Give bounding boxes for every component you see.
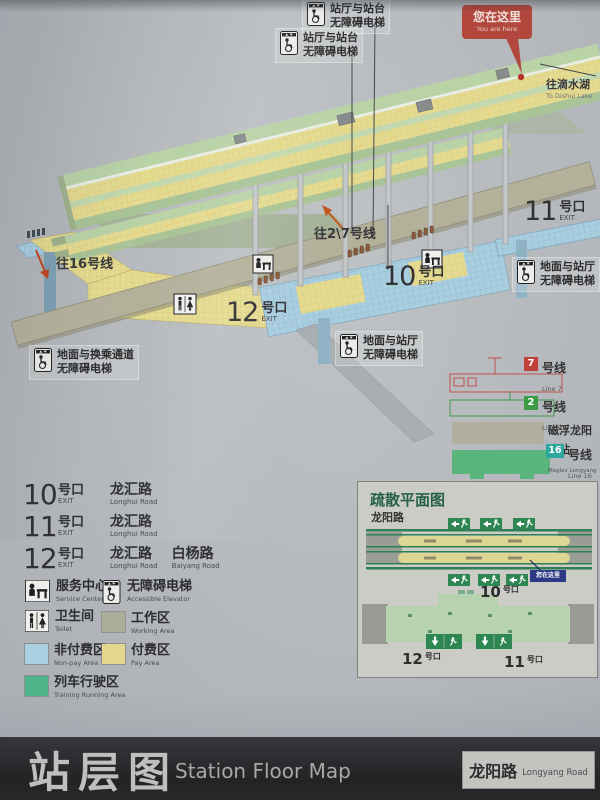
exit-number: 10 bbox=[383, 263, 415, 290]
station-floor-map-photo: 站厅与站台 无障碍电梯 站厅与站台 无障碍电梯 您在这里 You are her… bbox=[0, 0, 600, 800]
accessible-elevator-icon bbox=[102, 580, 121, 604]
road-cn: 白杨路 bbox=[172, 547, 220, 562]
line-7-sub: Line 7 bbox=[542, 385, 562, 393]
line-16-sub: Line 16 bbox=[568, 472, 592, 480]
road-cn: 龙汇路 bbox=[110, 515, 158, 530]
elevator-icon bbox=[340, 334, 358, 358]
to-dishui-cn: 往滴水湖 bbox=[546, 76, 598, 92]
legend-cn: 非付费区 bbox=[54, 644, 106, 659]
legend-accessible-elevator: 无障碍电梯 Accessible Elevator bbox=[102, 580, 192, 604]
evac-exit-suffix: 号口 bbox=[527, 656, 543, 664]
map-exit-12: 12 号口 EXIT bbox=[226, 299, 287, 326]
lift-label-line2: 无障碍电梯 bbox=[303, 45, 358, 59]
callout-lift-transfer-left: 地面与换乘通道 无障碍电梯 bbox=[30, 346, 138, 379]
exit-sub: EXIT bbox=[559, 214, 585, 222]
toilet-icon bbox=[25, 610, 49, 632]
station-name-cn: 龙阳路 bbox=[469, 758, 517, 782]
callout-lift-hall-platform-b: 站厅与站台 无障碍电梯 bbox=[276, 29, 362, 62]
legend-cn: 工作区 bbox=[131, 612, 175, 627]
elevator-icon bbox=[34, 348, 52, 372]
train-running-area-swatch bbox=[25, 676, 48, 696]
legend-en: Training Running Area bbox=[54, 691, 125, 699]
line-7-label: 号线 bbox=[542, 361, 566, 375]
evac-exit-11: 11 号口 bbox=[504, 655, 543, 670]
legend-en: Service Center bbox=[56, 595, 108, 603]
exit-sub: EXIT bbox=[261, 315, 287, 323]
evac-you-are-here-badge: 您在这里 bbox=[530, 570, 566, 582]
lift-label-line2: 无障碍电梯 bbox=[540, 274, 595, 288]
road-en: Longhui Road bbox=[110, 562, 158, 570]
exit-number: 11 bbox=[524, 198, 556, 225]
page-title-en: Station Floor Map bbox=[175, 759, 351, 783]
exit-suffix: 号口 bbox=[261, 302, 287, 315]
elevator-icon bbox=[307, 2, 325, 26]
legend-toilet: 卫生间 Toilet bbox=[25, 610, 94, 633]
line-2-label: 号线 bbox=[542, 400, 566, 414]
legend-cn: 列车行驶区 bbox=[54, 676, 125, 691]
road-en: Baiyang Road bbox=[172, 562, 220, 570]
evac-exit-number: 12 bbox=[402, 652, 423, 667]
legend-en: Accessible Elevator bbox=[127, 595, 192, 603]
non-pay-area-swatch bbox=[25, 644, 48, 664]
you-are-here-balloon: 您在这里 You are here bbox=[462, 5, 532, 39]
exit-suffix: 号口 bbox=[58, 548, 84, 561]
station-name-badge: 龙阳路 Longyang Road bbox=[463, 752, 594, 788]
exit-suffix: 号口 bbox=[58, 484, 84, 497]
line-16-row: 16 号线 Line 16 bbox=[546, 444, 592, 482]
callout-to-line-16: 往16号线 bbox=[56, 253, 113, 272]
evac-exit-suffix: 号口 bbox=[503, 586, 519, 594]
evac-exit-number: 11 bbox=[504, 655, 525, 670]
legend-cn: 付费区 bbox=[131, 644, 170, 659]
evac-exit-suffix: 号口 bbox=[425, 653, 441, 661]
legend-train-running-area: 列车行驶区 Training Running Area bbox=[25, 676, 125, 699]
exit-sub: EXIT bbox=[58, 529, 84, 537]
road-en: Longhui Road bbox=[110, 530, 158, 538]
lift-label-line1: 站厅与站台 bbox=[303, 31, 358, 45]
lift-label-line1: 地面与站厅 bbox=[363, 334, 418, 348]
pay-area-swatch bbox=[102, 644, 125, 664]
service-center-icon bbox=[253, 255, 273, 273]
legend-en: Non-pay Area bbox=[54, 659, 106, 667]
lift-label-line1: 地面与站厅 bbox=[540, 260, 595, 274]
legend-non-pay-area: 非付费区 Non-pay Area bbox=[25, 644, 106, 667]
exit-road-row-11: 11 号口 EXIT 龙汇路 Longhui Road bbox=[23, 513, 158, 541]
road-cn: 龙汇路 bbox=[110, 547, 158, 562]
legend-en: Working Area bbox=[131, 627, 175, 635]
station-name-en: Longyang Road bbox=[522, 768, 588, 778]
exit-road-row-12: 12 号口 EXIT 龙汇路 Longhui Road 白杨路 Baiyang … bbox=[23, 545, 220, 573]
service-center-icon bbox=[25, 580, 50, 602]
exit-suffix: 号口 bbox=[418, 266, 444, 279]
legend-en: Pay Area bbox=[131, 659, 170, 667]
legend-cn: 卫生间 bbox=[55, 610, 94, 625]
you-are-here-en: You are here bbox=[462, 25, 532, 33]
exit-number: 12 bbox=[23, 545, 58, 573]
exit-sub: EXIT bbox=[58, 561, 84, 569]
lift-label-line1: 站厅与站台 bbox=[330, 2, 385, 16]
callout-lift-ground-hall-center: 地面与站厅 无障碍电梯 bbox=[336, 332, 422, 365]
line-16-badge: 16 bbox=[546, 444, 564, 458]
exit-suffix: 号口 bbox=[58, 516, 84, 529]
legend-service-center: 服务中心 Service Center bbox=[25, 580, 108, 603]
callout-to-dishui-lake: 往滴水湖 To Dishui Lake bbox=[546, 76, 598, 100]
working-area-swatch bbox=[102, 612, 125, 632]
map-exit-11: 11 号口 EXIT bbox=[524, 198, 585, 225]
map-exit-10: 10 号口 EXIT bbox=[383, 263, 444, 290]
legend-cn: 无障碍电梯 bbox=[127, 580, 192, 595]
lift-label-line2: 无障碍电梯 bbox=[363, 348, 418, 362]
to-dishui-en: To Dishui Lake bbox=[546, 92, 598, 100]
evac-exit-number: 10 bbox=[480, 585, 501, 600]
elevator-icon bbox=[517, 260, 535, 284]
you-are-here-cn: 您在这里 bbox=[462, 5, 532, 25]
line-2-badge: 2 bbox=[524, 396, 538, 410]
toilet-icon bbox=[174, 294, 196, 314]
exit-number: 12 bbox=[226, 299, 258, 326]
page-title-cn: 站层图 bbox=[28, 739, 178, 800]
callout-lift-hall-platform-a: 站厅与站台 无障碍电梯 bbox=[303, 0, 389, 33]
exit-sub: EXIT bbox=[418, 279, 444, 287]
line-16-label: 号线 bbox=[568, 448, 592, 462]
evac-exit-12: 12 号口 bbox=[402, 652, 441, 667]
exit-number: 10 bbox=[23, 481, 58, 509]
elevator-icon bbox=[280, 31, 298, 55]
exit-sub: EXIT bbox=[58, 497, 84, 505]
callout-to-line-2-7: 往2\7号线 bbox=[314, 223, 376, 242]
lift-label-line2: 无障碍电梯 bbox=[57, 362, 134, 376]
footer-band: 站层图 Station Floor Map 龙阳路 Longyang Road bbox=[0, 737, 600, 800]
lift-label-line1: 地面与换乘通道 bbox=[57, 348, 134, 362]
exit-road-row-10: 10 号口 EXIT 龙汇路 Longhui Road bbox=[23, 481, 158, 509]
callout-lift-ground-hall-right: 地面与站厅 无障碍电梯 bbox=[513, 258, 599, 291]
exit-suffix: 号口 bbox=[559, 201, 585, 214]
line-7-badge: 7 bbox=[524, 357, 538, 371]
exit-number: 11 bbox=[23, 513, 58, 541]
evacuation-plan-panel: 疏散平面图 龙阳路 bbox=[358, 482, 597, 677]
road-cn: 龙汇路 bbox=[110, 483, 158, 498]
evac-exit-10: 10 号口 bbox=[480, 585, 519, 600]
road-en: Longhui Road bbox=[110, 498, 158, 506]
legend-pay-area: 付费区 Pay Area bbox=[102, 644, 170, 667]
legend-cn: 服务中心 bbox=[56, 580, 108, 595]
line-7-row: 7 号线 Line 7 bbox=[524, 357, 566, 395]
legend-en: Toilet bbox=[55, 625, 94, 633]
legend-working-area: 工作区 Working Area bbox=[102, 612, 175, 635]
